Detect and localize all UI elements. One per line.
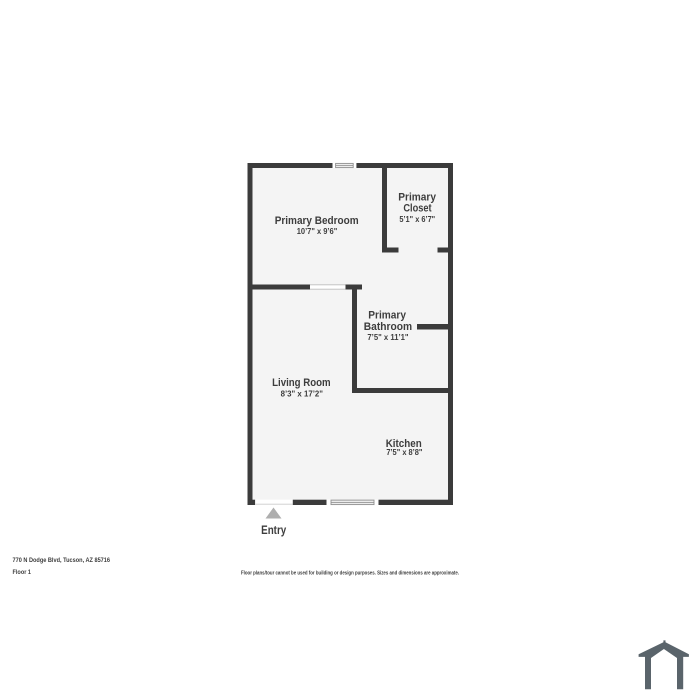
svg-text:Entry: Entry: [261, 525, 287, 537]
svg-text:5’1" x 6’7": 5’1" x 6’7": [399, 215, 435, 224]
svg-text:770 N Dodge Blvd, Tucson, AZ 8: 770 N Dodge Blvd, Tucson, AZ 85716: [13, 557, 111, 564]
svg-text:8’3" x 17’2": 8’3" x 17’2": [281, 390, 324, 399]
svg-text:7’5" x 11’1": 7’5" x 11’1": [367, 333, 408, 342]
svg-text:Primary: Primary: [368, 310, 406, 322]
svg-text:10’7" x 9’6": 10’7" x 9’6": [297, 227, 338, 236]
svg-text:Closet: Closet: [403, 203, 432, 215]
svg-text:7’5" x 8’8": 7’5" x 8’8": [386, 448, 422, 457]
svg-text:Floor plans/tour cannot be use: Floor plans/tour cannot be used for buil…: [241, 571, 459, 577]
svg-text:Bathroom: Bathroom: [364, 321, 412, 333]
svg-text:Floor 1: Floor 1: [13, 569, 32, 576]
svg-text:Primary: Primary: [398, 191, 436, 203]
svg-text:Living Room: Living Room: [272, 377, 331, 389]
svg-text:Primary Bedroom: Primary Bedroom: [275, 215, 359, 227]
